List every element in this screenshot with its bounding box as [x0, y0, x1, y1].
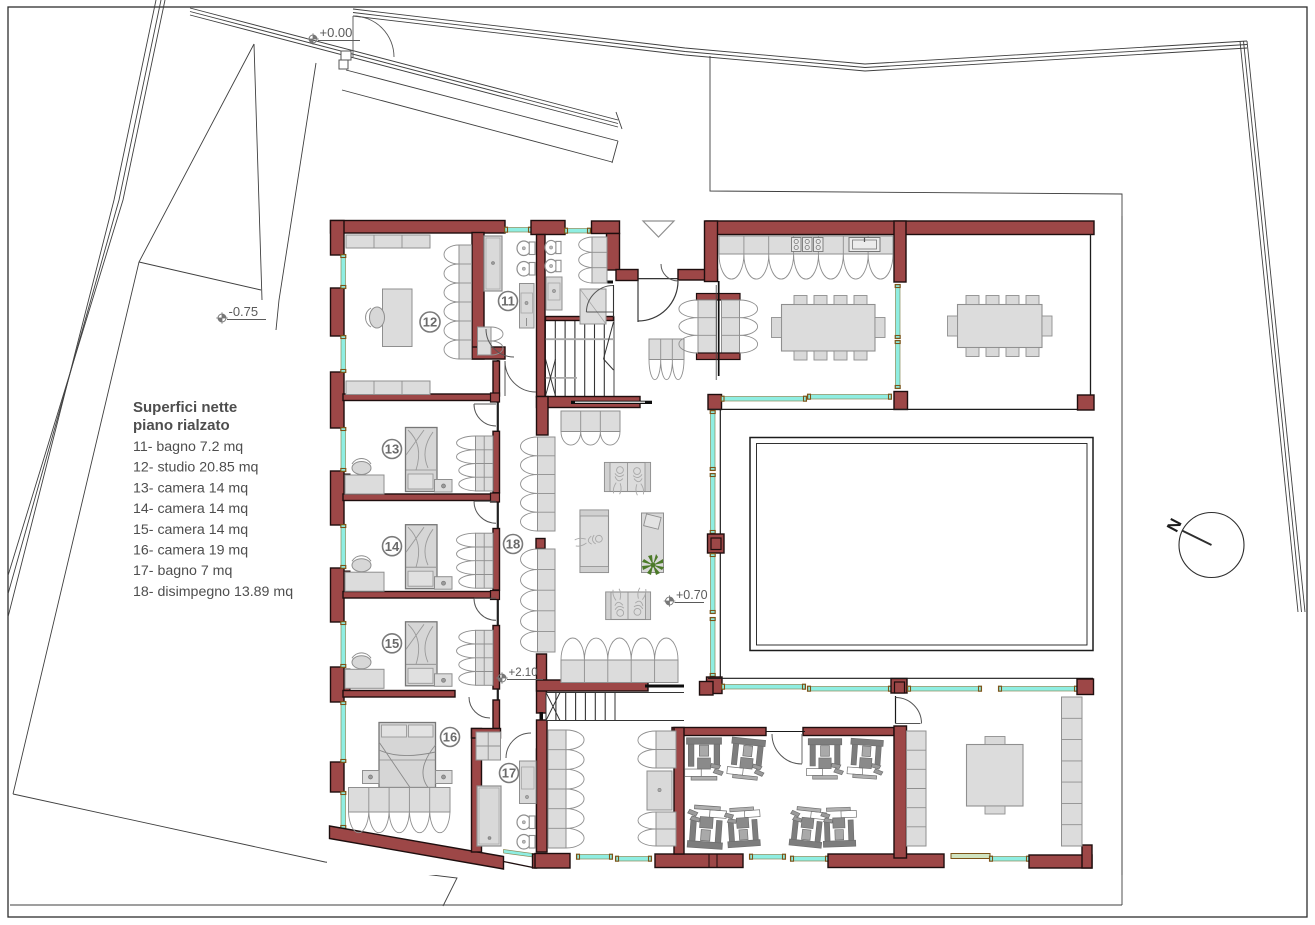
svg-text:12: 12 — [423, 315, 437, 330]
svg-text:+0.70: +0.70 — [676, 588, 708, 602]
svg-text:18: 18 — [506, 537, 520, 552]
svg-text:+0.00: +0.00 — [320, 25, 353, 40]
svg-text:11- bagno 7.2 mq: 11- bagno 7.2 mq — [133, 439, 243, 455]
svg-text:15- camera 14 mq: 15- camera 14 mq — [133, 522, 248, 538]
svg-text:18- disimpegno 13.89 mq: 18- disimpegno 13.89 mq — [133, 584, 293, 600]
svg-text:-0.75: -0.75 — [229, 304, 259, 319]
svg-text:17: 17 — [502, 766, 516, 781]
svg-text:16- camera 19 mq: 16- camera 19 mq — [133, 543, 248, 559]
svg-text:13- camera 14 mq: 13- camera 14 mq — [133, 480, 248, 496]
svg-text:Superfici nette: Superfici nette — [133, 399, 237, 416]
svg-text:14- camera 14 mq: 14- camera 14 mq — [133, 501, 248, 517]
svg-text:17- bagno 7 mq: 17- bagno 7 mq — [133, 563, 232, 579]
svg-text:13: 13 — [385, 442, 399, 457]
svg-text:piano rialzato: piano rialzato — [133, 417, 230, 434]
svg-text:15: 15 — [385, 636, 399, 651]
svg-text:16: 16 — [443, 730, 457, 745]
svg-text:+2.10: +2.10 — [509, 667, 538, 679]
svg-text:11: 11 — [501, 294, 515, 309]
svg-text:14: 14 — [385, 539, 400, 554]
svg-text:12- studio 20.85 mq: 12- studio 20.85 mq — [133, 460, 258, 476]
